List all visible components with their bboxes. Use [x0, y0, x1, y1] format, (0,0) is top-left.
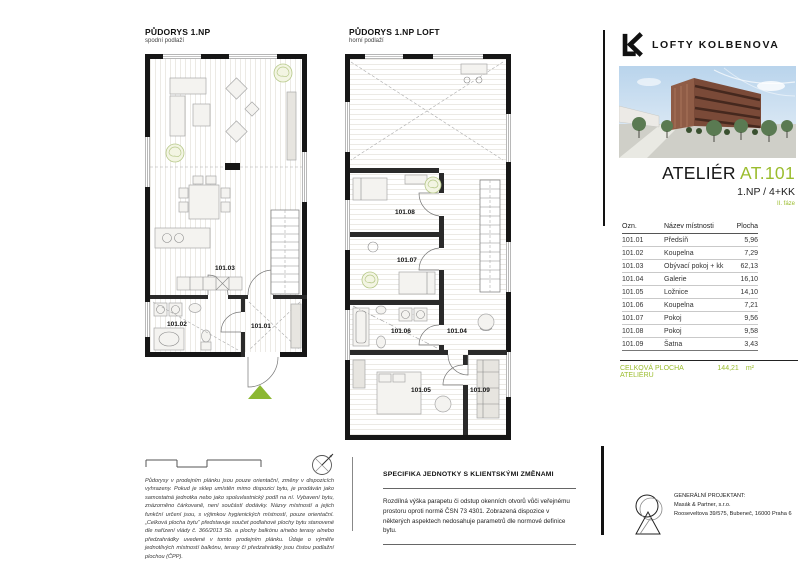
- plan-lower-header: PŮDORYS 1.NP spodní podlaží: [145, 27, 210, 44]
- plan-lower-subtitle: spodní podlaží: [145, 38, 210, 44]
- table-row: 101.01 Předsíň 5,96: [622, 234, 758, 247]
- room-table: Ozn. Název místnosti Plocha 101.01 Předs…: [622, 221, 758, 351]
- projectant-company: Masák & Partner, s.r.o.: [674, 501, 792, 510]
- cell-code: 101.07: [622, 315, 664, 322]
- cell-name: Šatna: [664, 341, 724, 348]
- unit-title-block: ATELIÉR AT.101 1.NP / 4+KK II. fáze: [560, 163, 795, 207]
- projectant-block: GENERÁLNÍ PROJEKTANT: Masák & Partner, s…: [630, 492, 792, 536]
- staircase: [271, 210, 299, 294]
- cell-code: 101.08: [622, 328, 664, 335]
- plan-sheet: PŮDORYS 1.NP spodní podlaží: [0, 0, 800, 566]
- unit-id: AT.101: [740, 163, 795, 183]
- compass-icon: [309, 451, 336, 478]
- room-label: 101.07: [397, 257, 417, 264]
- table-row: 101.02 Koupelna 7,29: [622, 247, 758, 260]
- total-area-row: CELKOVÁ PLOCHA ATELIÉRU 144,21 m²: [620, 360, 798, 379]
- cell-code: 101.06: [622, 302, 664, 309]
- cell-code: 101.01: [622, 237, 664, 244]
- header-name: Název místnosti: [664, 223, 724, 230]
- brand: LOFTY KOLBENOVA: [619, 32, 779, 58]
- room-label: 101.01: [251, 323, 271, 330]
- header-code: Ozn.: [622, 223, 664, 230]
- unit-layout: 1.NP / 4+KK: [560, 186, 795, 198]
- room-label: 101.05: [411, 387, 431, 394]
- header-area: Plocha: [724, 223, 758, 230]
- cell-name: Koupelna: [664, 302, 724, 309]
- unit-type-label: ATELIÉR: [662, 163, 736, 183]
- lk-logo-icon: [619, 32, 645, 58]
- cell-area: 5,96: [724, 237, 758, 244]
- unit-phase: II. fáze: [560, 201, 795, 207]
- cell-code: 101.04: [622, 276, 664, 283]
- cell-area: 7,29: [724, 250, 758, 257]
- floor-plan-upper-drawing: 101.08 101.07 101.06 101.04 101.05 101.0…: [343, 52, 513, 444]
- room-label: 101.09: [470, 387, 490, 394]
- table-row: 101.07 Pokoj 9,56: [622, 312, 758, 325]
- projectant-logo-icon: [630, 492, 666, 536]
- specifics-block: SPECIFIKA JEDNOTKY S KLIENTSKÝMI ZMĚNAMI…: [383, 471, 576, 545]
- total-unit: m²: [746, 365, 754, 372]
- cell-name: Pokoj: [664, 328, 724, 335]
- specifics-title: SPECIFIKA JEDNOTKY S KLIENTSKÝMI ZMĚNAMI: [383, 471, 576, 478]
- plan-upper-header: PŮDORYS 1.NP LOFT horní podlaží: [349, 27, 440, 44]
- tree-icon: [362, 272, 378, 288]
- cell-name: Ložnice: [664, 289, 724, 296]
- room-label: 101.02: [167, 321, 187, 328]
- cell-area: 9,58: [724, 328, 758, 335]
- projectant-title: GENERÁLNÍ PROJEKTANT:: [674, 492, 792, 501]
- plan-lower-title: PŮDORYS 1.NP: [145, 27, 210, 37]
- cell-area: 14,10: [724, 289, 758, 296]
- table-row: 101.05 Ložnice 14,10: [622, 286, 758, 299]
- table-row: 101.09 Šatna 3,43: [622, 338, 758, 351]
- total-value: 144,21: [717, 365, 738, 372]
- table-row: 101.04 Galerie 16,10: [622, 273, 758, 286]
- room-label: 101.03: [215, 265, 235, 272]
- cell-area: 9,56: [724, 315, 758, 322]
- cell-code: 101.02: [622, 250, 664, 257]
- room-label: 101.04: [447, 328, 467, 335]
- scale-bar: [145, 456, 265, 470]
- cell-area: 7,21: [724, 302, 758, 309]
- cell-code: 101.03: [622, 263, 664, 270]
- cell-name: Pokoj: [664, 315, 724, 322]
- cell-name: Koupelna: [664, 250, 724, 257]
- projectant-address: Rooseveltova 39/575, Bubeneč, 16000 Prah…: [674, 510, 792, 519]
- tree-icon: [425, 177, 441, 193]
- tree-icon: [274, 64, 292, 82]
- cell-area: 62,13: [724, 263, 758, 270]
- specifics-body: Rozdílná výška parapetu či odstup okenní…: [383, 488, 576, 545]
- floor-plan-lower-drawing: 101.03 101.02 101.01: [143, 52, 311, 400]
- cell-name: Obývací pokoj + kk: [664, 263, 724, 270]
- cell-name: Galerie: [664, 276, 724, 283]
- plan-upper-title: PŮDORYS 1.NP LOFT: [349, 27, 440, 37]
- projectant-divider-line: [601, 446, 604, 535]
- table-row: 101.03 Obývací pokoj + kk 62,13: [622, 260, 758, 273]
- cell-name: Předsíň: [664, 237, 724, 244]
- table-row: 101.08 Pokoj 9,58: [622, 325, 758, 338]
- building-photo: [619, 66, 796, 158]
- brand-name: LOFTY KOLBENOVA: [652, 39, 779, 51]
- table-row: 101.06 Koupelna 7,21: [622, 299, 758, 312]
- table-header-row: Ozn. Název místnosti Plocha: [622, 221, 758, 234]
- cell-area: 3,43: [724, 341, 758, 348]
- projectant-text: GENERÁLNÍ PROJEKTANT: Masák & Partner, s…: [674, 492, 792, 519]
- disclaimer-text: Půdorysy v prodejním plánku jsou pouze o…: [145, 477, 334, 561]
- room-label: 101.08: [395, 209, 415, 216]
- cell-code: 101.09: [622, 341, 664, 348]
- tree-icon: [166, 144, 184, 162]
- notes-divider-line: [352, 457, 353, 531]
- loft-edge-stub: [225, 163, 240, 170]
- cell-area: 16,10: [724, 276, 758, 283]
- unit-title: ATELIÉR AT.101: [560, 163, 795, 184]
- staircase: [480, 180, 500, 292]
- table-body: 101.01 Předsíň 5,96 101.02 Koupelna 7,29…: [622, 234, 758, 351]
- plan-upper-subtitle: horní podlaží: [349, 38, 440, 44]
- cell-code: 101.05: [622, 289, 664, 296]
- total-label: CELKOVÁ PLOCHA ATELIÉRU: [620, 365, 717, 379]
- room-label: 101.06: [391, 328, 411, 335]
